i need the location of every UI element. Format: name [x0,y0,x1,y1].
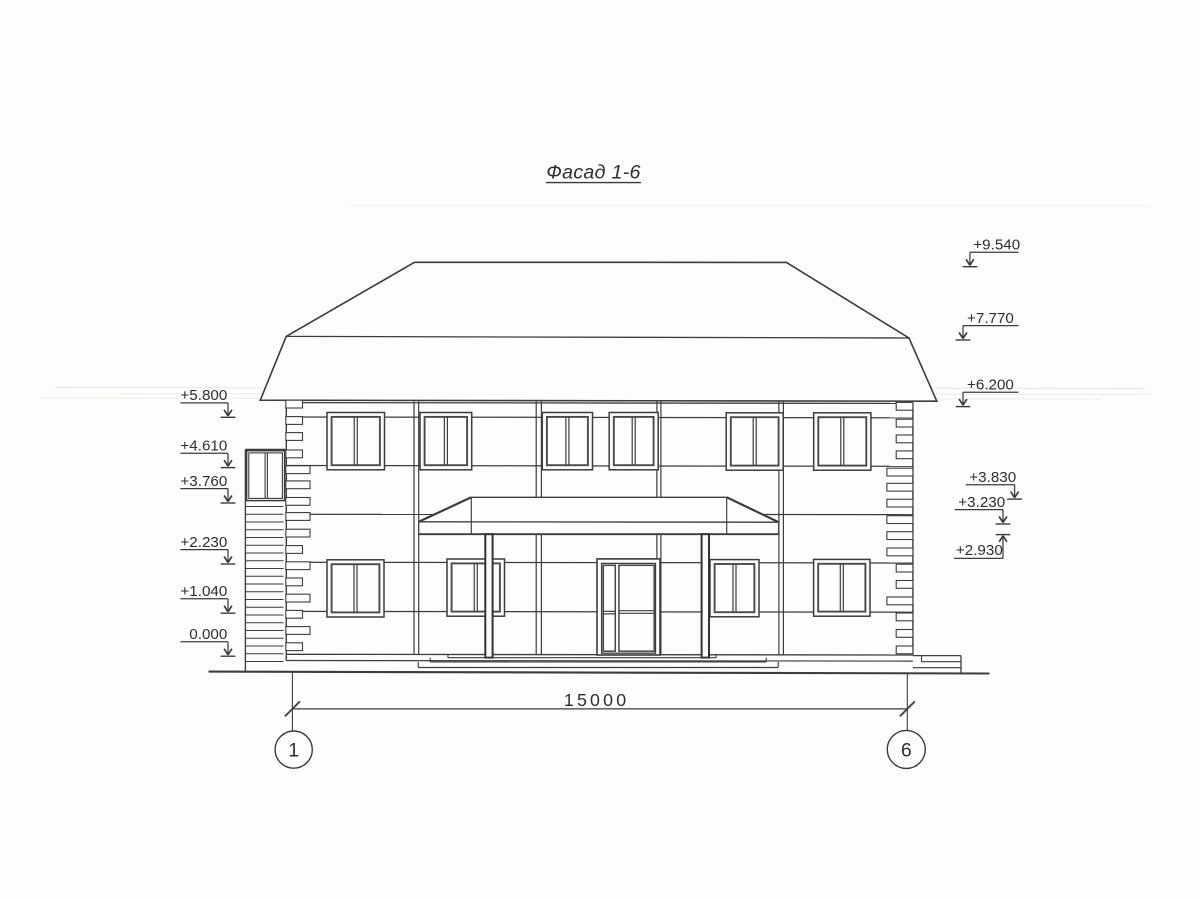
svg-text:0.000: 0.000 [189,626,227,643]
svg-text:6: 6 [901,739,912,761]
svg-text:+9.540: +9.540 [973,237,1020,254]
svg-text:+5.800: +5.800 [180,387,227,404]
svg-text:+2.930: +2.930 [956,542,1003,559]
svg-text:+1.040: +1.040 [180,583,227,600]
svg-text:+2.230: +2.230 [180,534,227,551]
svg-text:1: 1 [288,740,299,762]
svg-text:+7.770: +7.770 [967,310,1014,327]
svg-text:+3.230: +3.230 [958,494,1005,511]
svg-text:Фасад 1-6: Фасад 1-6 [546,161,640,183]
svg-text:+6.200: +6.200 [967,377,1014,394]
svg-text:+4.610: +4.610 [180,438,227,455]
svg-text:+3.830: +3.830 [969,469,1016,486]
svg-text:15000: 15000 [564,690,629,710]
svg-text:+3.760: +3.760 [180,473,227,490]
